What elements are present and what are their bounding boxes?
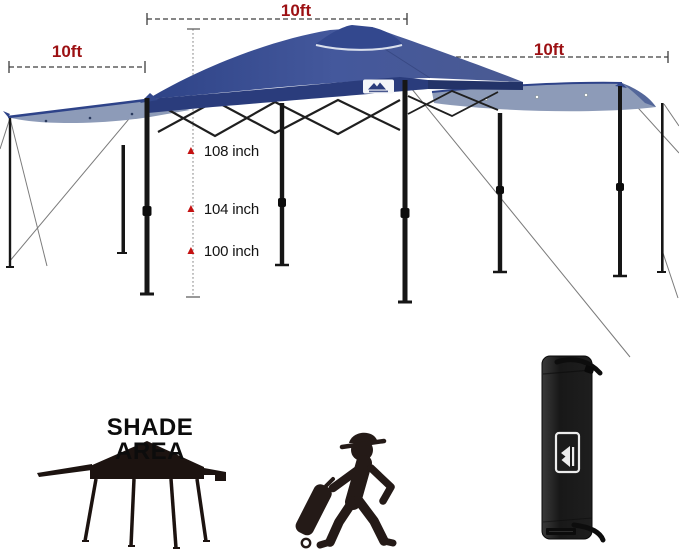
height-value: 100 inch [204, 244, 259, 259]
rolling-bag [293, 482, 334, 538]
awning-pole-left [9, 118, 11, 267]
dim-line-left [9, 61, 145, 73]
valance-right [428, 80, 523, 90]
silhouette-right-awning [204, 468, 226, 481]
height-value: 108 inch [204, 144, 259, 159]
red-triangle-icon: ▲ [185, 144, 197, 156]
leg-back-left [122, 145, 126, 253]
leg-front-right [403, 80, 408, 302]
person-arm-back [371, 468, 391, 501]
product-image: 10ft 10ft 10ft ▲ 108 inch ▲ 104 inch ▲ 1… [0, 0, 679, 550]
front-legs [140, 80, 412, 302]
awning-pole-far-right [661, 103, 664, 272]
bag-wheel [302, 539, 310, 547]
leg-back-center [280, 103, 284, 265]
bag-brand-patch [556, 433, 579, 472]
red-triangle-icon: ▲ [185, 202, 197, 214]
canopy-brand-logo [363, 80, 394, 94]
dimension-label-right: 10ft [519, 41, 579, 59]
silhouette-left-awning [37, 464, 92, 477]
height-annotation-104: ▲ 104 inch [185, 201, 259, 217]
height-annotation-108: ▲ 108 inch [185, 143, 259, 159]
guy-ropes [0, 83, 679, 357]
red-triangle-icon: ▲ [185, 244, 197, 256]
leg-front-left [145, 98, 150, 294]
height-value: 104 inch [204, 202, 259, 217]
person-leg-front [330, 501, 353, 542]
height-annotation-100: ▲ 100 inch [185, 243, 259, 259]
dimension-label-left: 10ft [37, 43, 97, 61]
peak-vent [316, 25, 402, 49]
person-pulling-bag-icon [293, 433, 393, 547]
dimension-label-top: 10ft [266, 2, 326, 20]
carry-bag-icon [542, 356, 603, 540]
rear-poles [6, 103, 666, 272]
mid-legs [275, 86, 627, 276]
canopy-illustration [0, 0, 679, 550]
shade-area-title: SHADE AREA [70, 416, 230, 464]
person-leg-back [359, 501, 384, 541]
awning-pole-right [618, 86, 622, 276]
